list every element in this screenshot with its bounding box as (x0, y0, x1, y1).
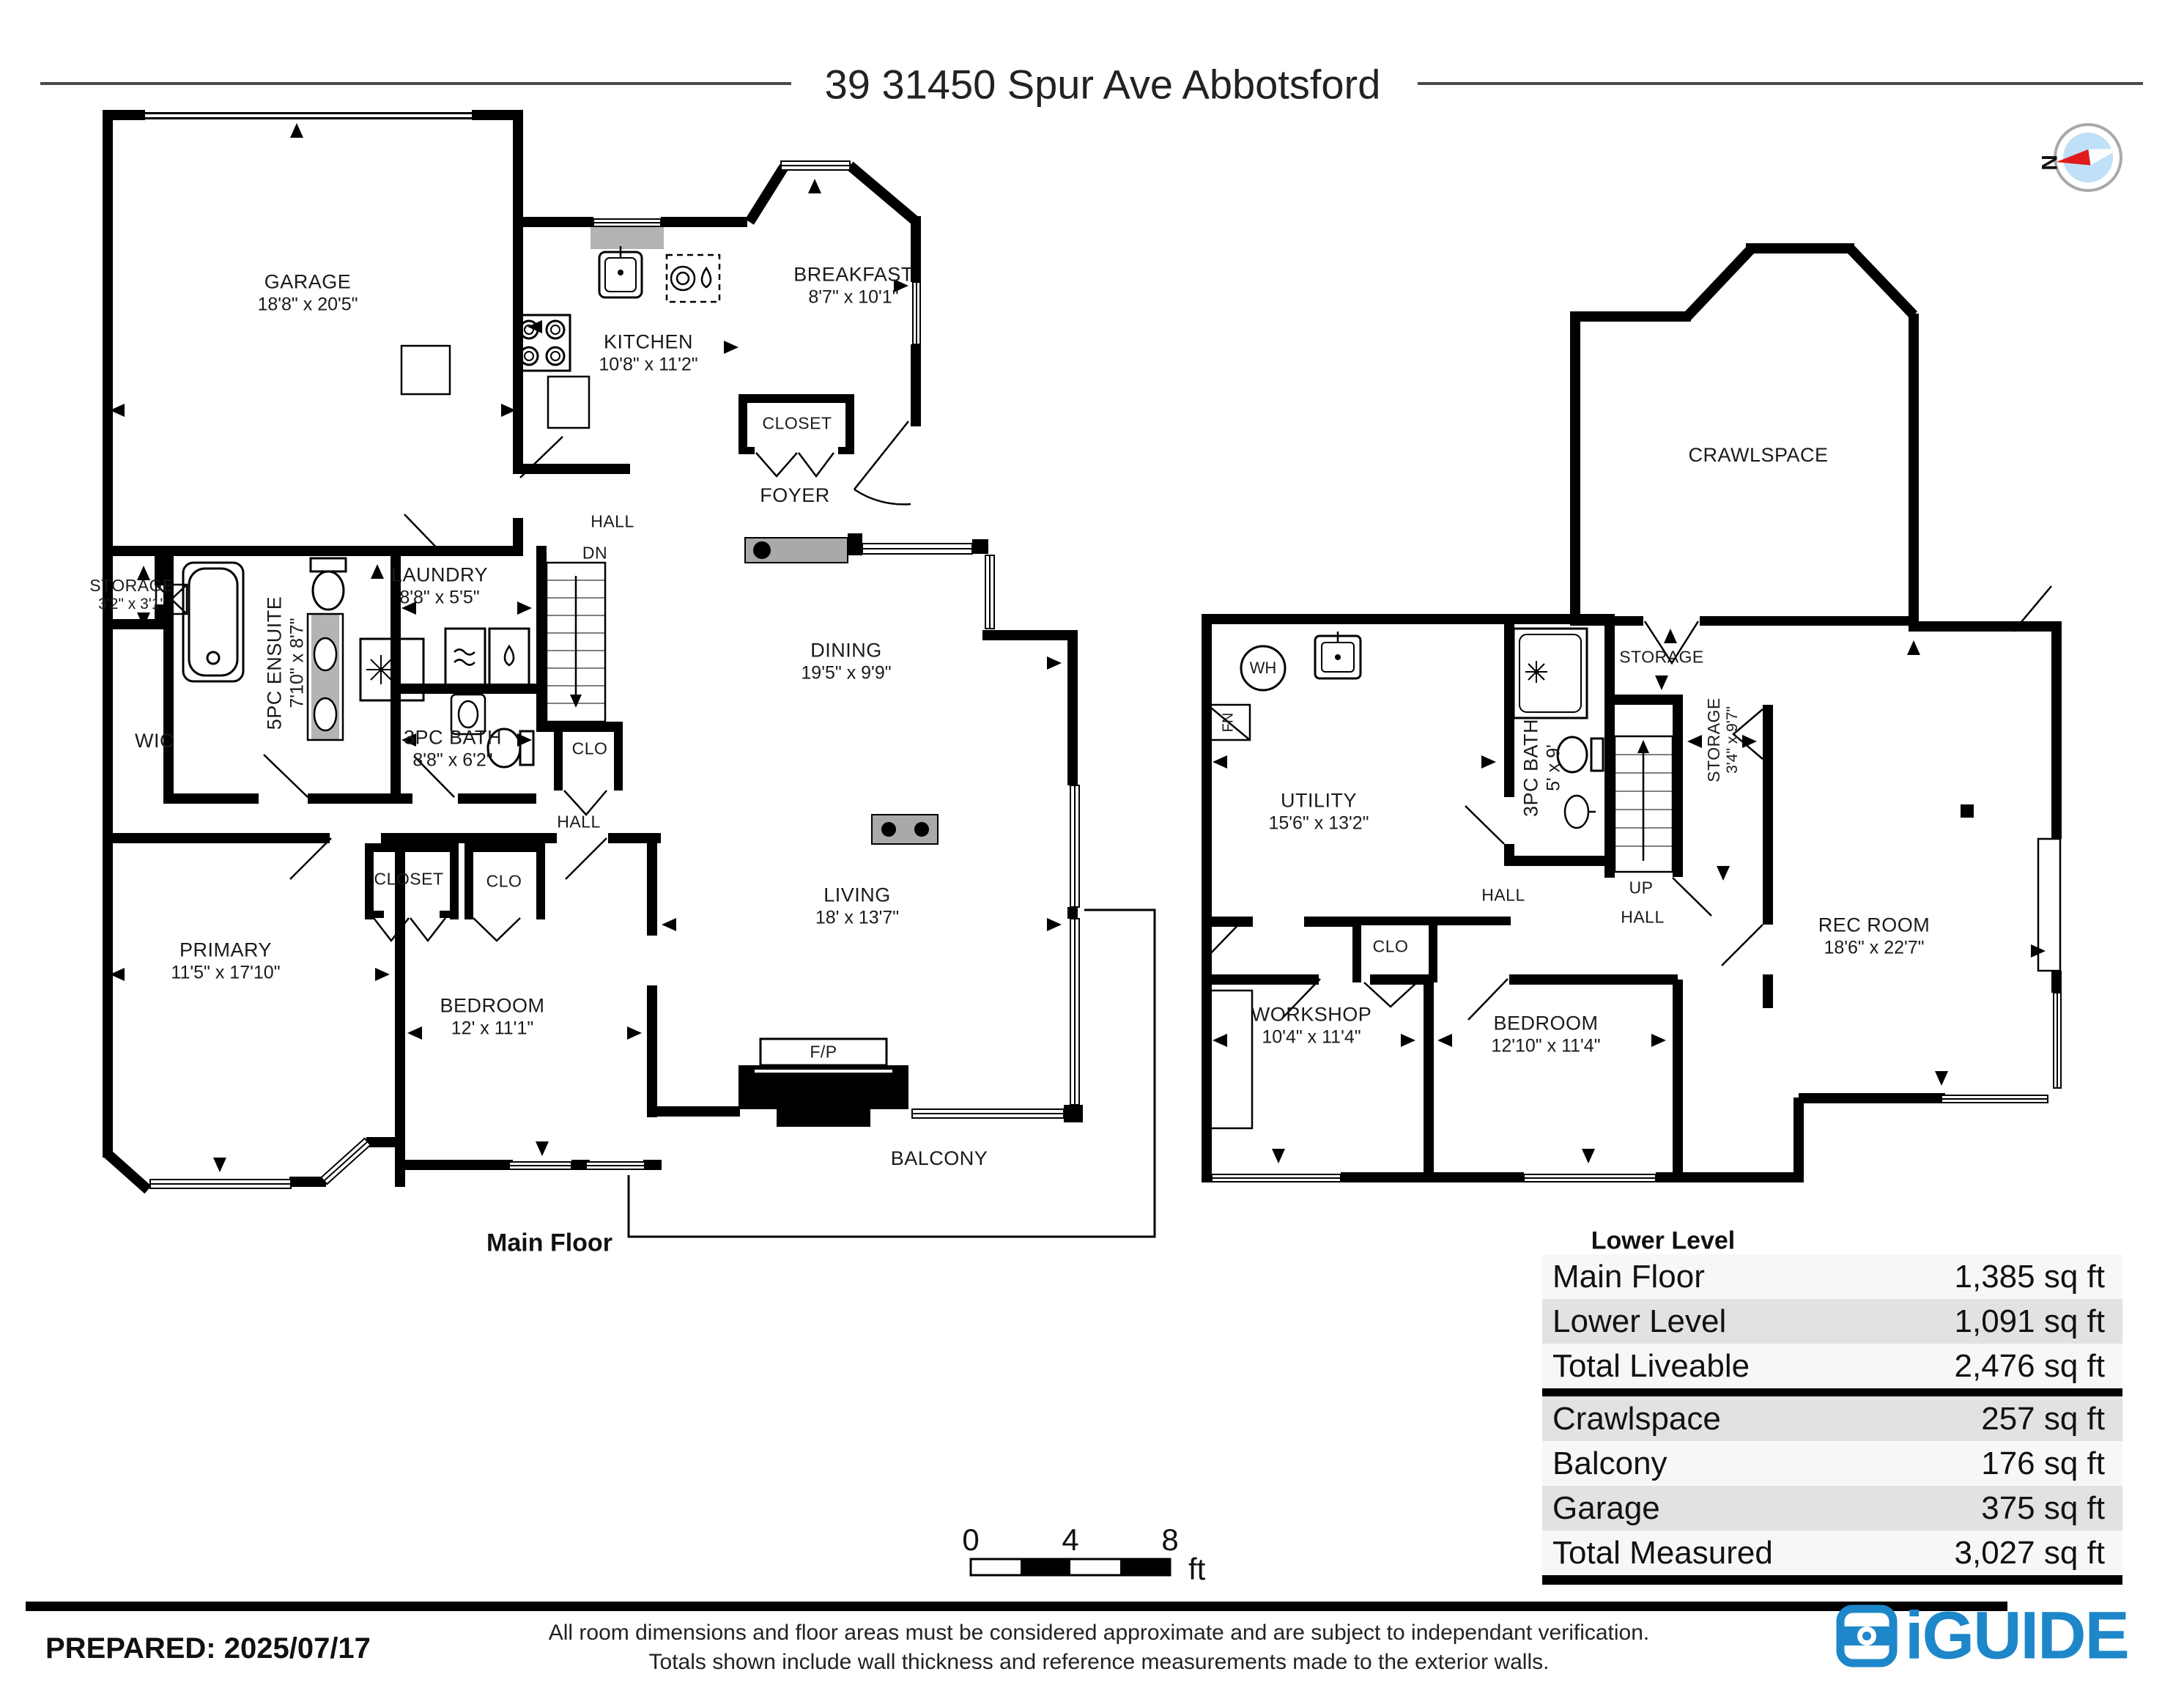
room-label-clo-lower: CLO (1373, 936, 1409, 956)
scale-tick-0: 0 (962, 1522, 979, 1558)
scale-unit: ft (1188, 1552, 1205, 1587)
utility-sink-icon (1315, 632, 1361, 678)
room-label-kitchen: KITCHEN10'8" x 11'2" (599, 330, 697, 375)
row-label: Balcony (1552, 1445, 1667, 1482)
row-label: Total Liveable (1552, 1348, 1750, 1385)
toilet-icon (311, 558, 346, 610)
window (1212, 1174, 1341, 1182)
window (912, 1109, 1064, 1118)
scale-bar (971, 1559, 1170, 1575)
caption-lower-level: Lower Level (1591, 1227, 1736, 1256)
room-label-hall-lower-right: HALL (1621, 907, 1665, 927)
row-value: 375 sq ft (1981, 1490, 2105, 1527)
window (586, 1162, 645, 1169)
room-label-breakfast: BREAKFAST8'7" x 10'1" (793, 263, 914, 308)
room-label-rec-room: REC ROOM18'6" x 22'7" (1818, 914, 1931, 958)
room-label-crawlspace: CRAWLSPACE (1688, 444, 1828, 467)
disclaimer-line1: All room dimensions and floor areas must… (549, 1621, 1650, 1646)
caption-main-floor: Main Floor (486, 1229, 612, 1258)
table-row: Total Measured3,027 sq ft (1542, 1530, 2122, 1575)
label-water-heater: WH (1250, 659, 1277, 678)
window (985, 555, 994, 629)
room-label-bedroom-main: BEDROOM12' x 11'1" (440, 994, 544, 1039)
room-label-hall-bottom: HALL (557, 812, 601, 832)
label-fireplace: F/P (810, 1042, 837, 1062)
floorplan-page: 39 31450 Spur Ave Abbotsford (0, 0, 2184, 1688)
row-value: 176 sq ft (1981, 1445, 2105, 1482)
disclaimer-line2: Totals shown include wall thickness and … (649, 1650, 1550, 1675)
row-value: 1,385 sq ft (1955, 1259, 2105, 1295)
washer-icon (445, 629, 485, 686)
room-label-utility: UTILITY15'6" x 13'2" (1268, 789, 1369, 834)
garage-utility-box (401, 346, 450, 394)
room-label-storage-landing: STORAGE (1619, 647, 1704, 667)
window (781, 161, 850, 170)
compass-icon (2055, 125, 2121, 190)
room-label-bedroom-lower: BEDROOM12'10" x 11'4" (1491, 1012, 1600, 1056)
room-label-hall-top: HALL (591, 511, 634, 531)
sink-icon (1565, 796, 1596, 828)
compass-north-label: N (2036, 155, 2061, 171)
row-label: Lower Level (1552, 1303, 1726, 1340)
stove-icon (516, 315, 570, 371)
room-label-dining: DINING19'5" x 9'9" (801, 639, 891, 684)
stairs-down (547, 563, 605, 722)
foyer-bench (745, 538, 848, 563)
row-label: Total Measured (1552, 1535, 1773, 1572)
window (1941, 1095, 2048, 1103)
window (321, 1139, 370, 1184)
room-label-clo-stairs: CLO (572, 738, 608, 758)
shower-icon (1514, 629, 1587, 718)
room-label-bath-main: 3PC BATH8'8" x 6'2" (404, 726, 502, 771)
window (150, 1180, 291, 1188)
table-bottom-border (1542, 1575, 2122, 1585)
room-label-bath-lower: 3PC BATH5' x 9' (1519, 719, 1564, 817)
row-value: 2,476 sq ft (1955, 1348, 2105, 1385)
table-row: Balcony176 sq ft (1542, 1441, 2122, 1486)
bathtub-icon (183, 563, 243, 681)
label-stairs-up: UP (1629, 878, 1654, 897)
window (1070, 785, 1079, 907)
scale-tick-8: 8 (1161, 1522, 1178, 1558)
room-label-storage2: STORAGE3'4" x 9'7" (1704, 697, 1742, 782)
dining-sideboard (872, 815, 938, 844)
room-label-ensuite: 5PC ENSUITE7'10" x 8'7" (263, 596, 308, 730)
iguide-logo-text: iGUIDE (1905, 1598, 2128, 1675)
table-divider (1542, 1388, 2122, 1396)
dishwasher-glyphs (671, 267, 711, 290)
table-row: Total Liveable2,476 sq ft (1542, 1344, 2122, 1388)
table-row: Crawlspace257 sq ft (1542, 1396, 2122, 1441)
window (509, 1162, 571, 1169)
window (913, 282, 920, 344)
kitchen-sink-icon (599, 246, 642, 297)
prepared-date: PREPARED: 2025/07/17 (45, 1632, 371, 1665)
scale-tick-4: 4 (1062, 1522, 1078, 1558)
room-label-storage-main: STORAGE3'2" x 3'1" (89, 576, 174, 614)
area-table: Main Floor1,385 sq ft Lower Level1,091 s… (1542, 1254, 2122, 1585)
row-label: Garage (1552, 1490, 1660, 1527)
fridge-icon (548, 377, 589, 428)
kitchen-counter (591, 227, 664, 249)
label-stairs-dn: DN (582, 543, 607, 563)
room-label-foyer-closet: CLOSET (762, 413, 832, 433)
room-label-garage: GARAGE18'8" x 20'5" (257, 270, 358, 315)
crawlspace-angled-walls (1687, 248, 1914, 316)
room-label-balcony: BALCONY (891, 1147, 988, 1171)
row-value: 1,091 sq ft (1955, 1303, 2105, 1340)
row-label: Crawlspace (1552, 1401, 1721, 1437)
table-row: Garage375 sq ft (1542, 1486, 2122, 1530)
footer-divider (26, 1602, 2007, 1611)
room-label-laundry: LAUNDRY8'8" x 5'5" (391, 563, 488, 608)
room-label-foyer: FOYER (760, 484, 830, 508)
window (862, 544, 972, 554)
workbench (1212, 991, 1252, 1128)
window (593, 219, 661, 226)
window (2054, 993, 2061, 1088)
window (1070, 919, 1079, 1105)
row-value: 3,027 sq ft (1955, 1535, 2105, 1572)
room-label-wic: WIC (135, 730, 174, 753)
room-label-primary: PRIMARY11'5" x 17'10" (171, 939, 280, 983)
table-row: Lower Level1,091 sq ft (1542, 1299, 2122, 1344)
vanity-double-sink (308, 614, 343, 740)
room-label-workshop: WORKSHOP10'4" x 11'4" (1251, 1003, 1372, 1048)
window (1524, 1174, 1656, 1182)
main-floor-walls (103, 110, 1083, 1187)
room-label-living: LIVING18' x 13'7" (815, 884, 899, 928)
room-label-bedroom-clo: CLO (486, 871, 522, 891)
label-furnace: FN (1221, 713, 1237, 733)
room-label-hall-lower-left: HALL (1481, 885, 1525, 905)
row-label: Main Floor (1552, 1259, 1705, 1295)
room-label-primary-closet: CLOSET (374, 869, 443, 889)
row-value: 257 sq ft (1981, 1401, 2105, 1437)
stairs-up (1615, 736, 1673, 872)
iguide-logo-icon (1839, 1609, 1895, 1663)
table-row: Main Floor1,385 sq ft (1542, 1254, 2122, 1299)
dryer-icon (489, 629, 529, 686)
